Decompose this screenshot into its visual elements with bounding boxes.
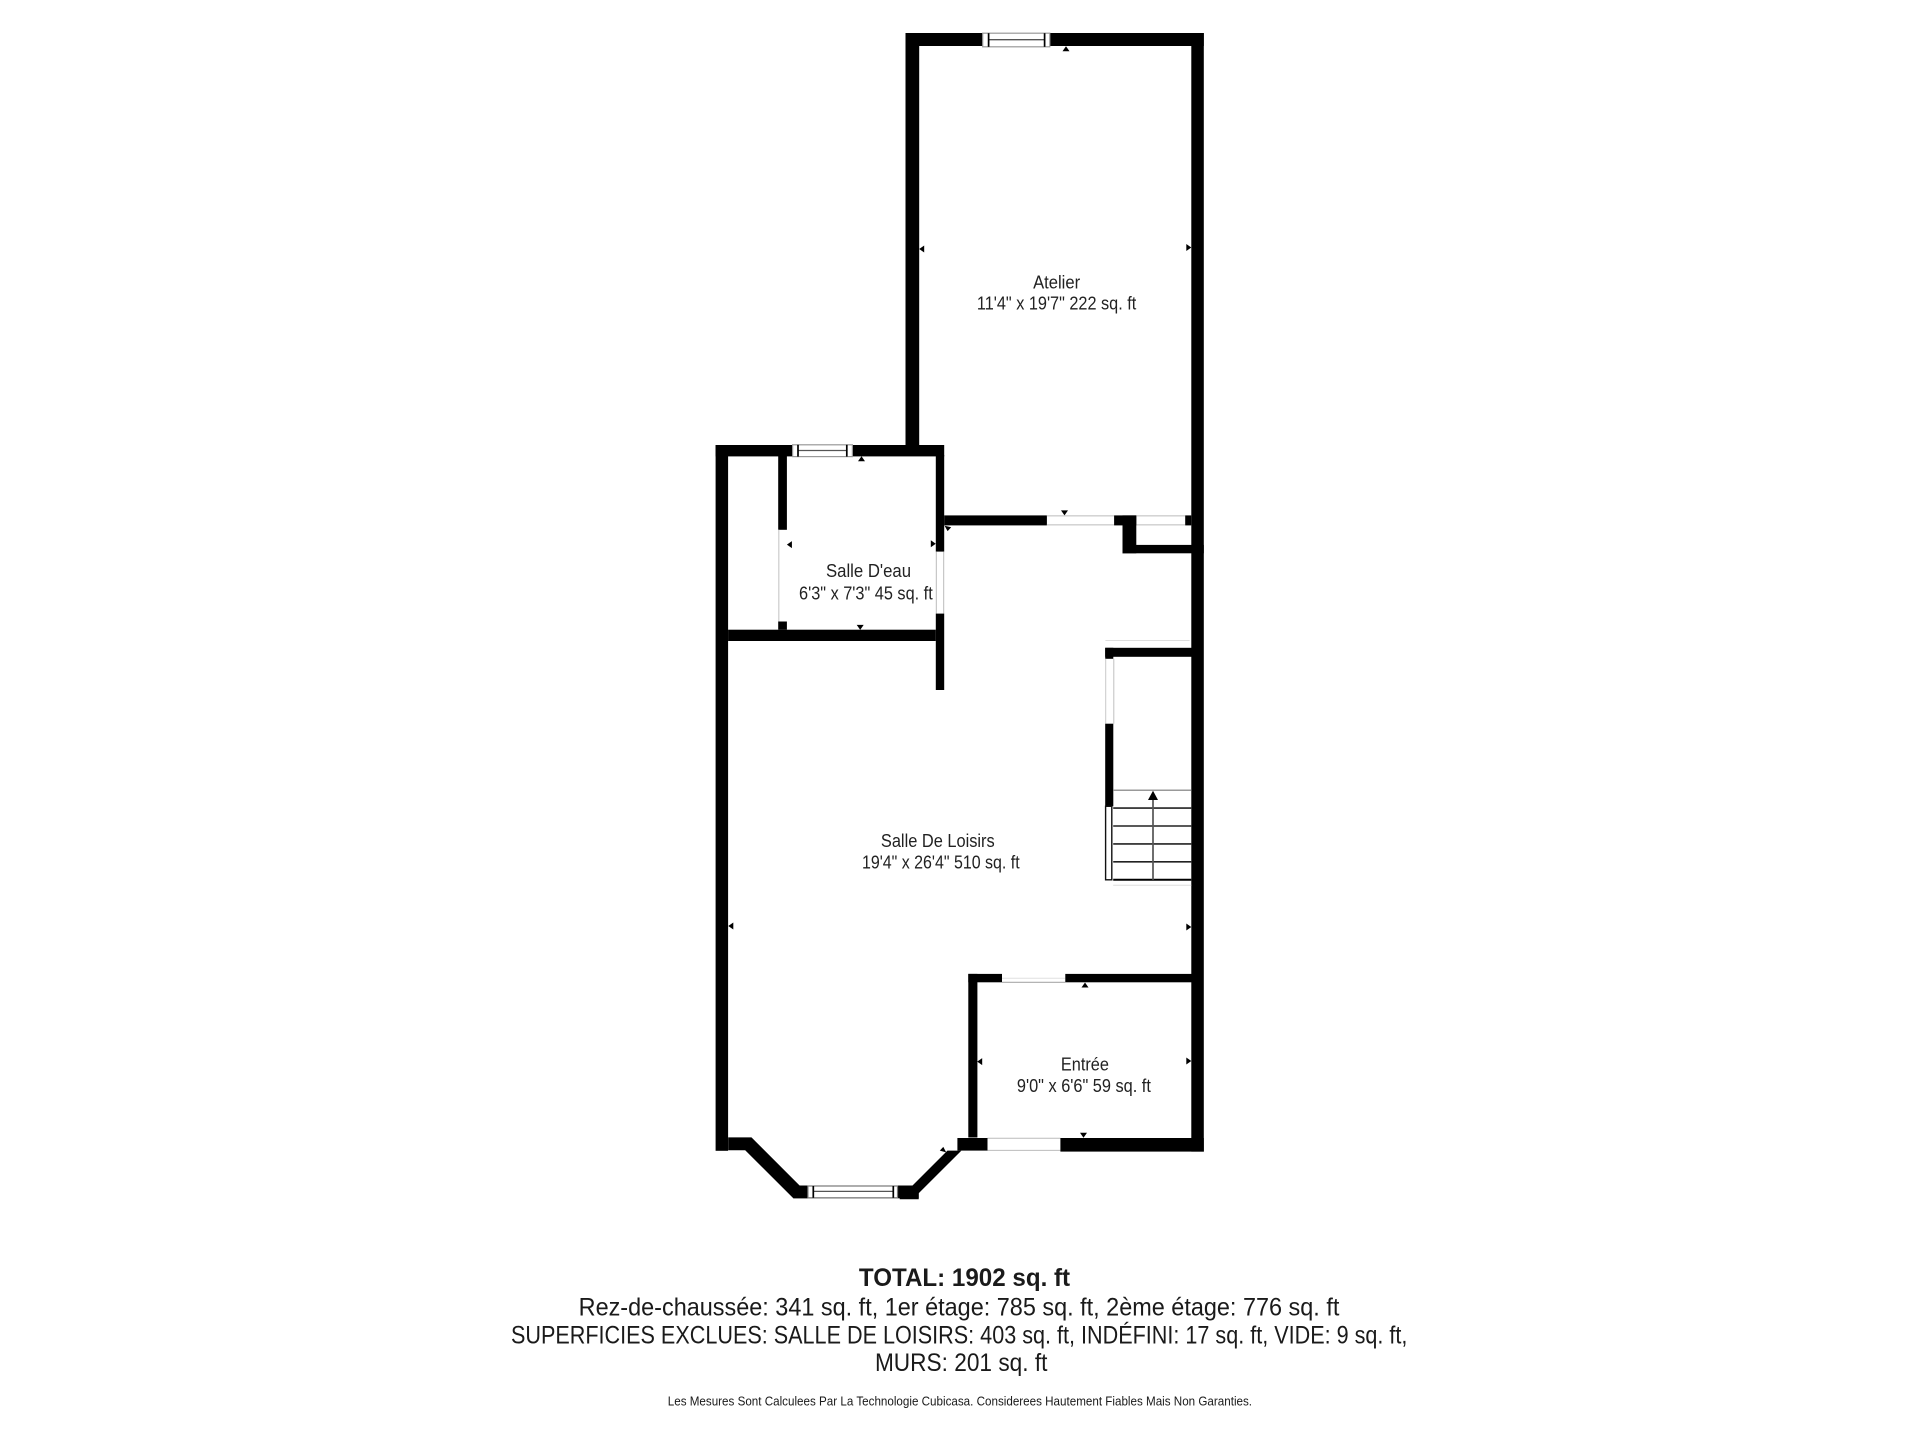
svg-text:Atelier: Atelier	[1033, 273, 1080, 293]
svg-text:TOTAL: 1902 sq. ft: TOTAL: 1902 sq. ft	[859, 1264, 1071, 1292]
svg-text:Entrée: Entrée	[1061, 1055, 1109, 1075]
svg-text:Rez-de-chaussée: 341 sq. ft, 1: Rez-de-chaussée: 341 sq. ft, 1er étage: …	[579, 1294, 1340, 1322]
svg-text:11'4" x 19'7" 222 sq. ft: 11'4" x 19'7" 222 sq. ft	[977, 293, 1136, 313]
svg-text:Salle D'eau: Salle D'eau	[826, 561, 911, 581]
svg-text:6'3" x 7'3" 45 sq. ft: 6'3" x 7'3" 45 sq. ft	[799, 583, 933, 603]
svg-text:Les Mesures Sont Calculees Par: Les Mesures Sont Calculees Par La Techno…	[668, 1394, 1252, 1409]
svg-text:SUPERFICIES EXCLUES: SALLE DE: SUPERFICIES EXCLUES: SALLE DE LOISIRS: 4…	[511, 1321, 1408, 1350]
svg-text:Salle De Loisirs: Salle De Loisirs	[881, 831, 995, 851]
svg-text:MURS: 201 sq. ft: MURS: 201 sq. ft	[875, 1349, 1048, 1377]
svg-text:19'4" x 26'4" 510 sq. ft: 19'4" x 26'4" 510 sq. ft	[862, 853, 1020, 873]
svg-text:9'0" x 6'6" 59 sq. ft: 9'0" x 6'6" 59 sq. ft	[1017, 1076, 1151, 1096]
